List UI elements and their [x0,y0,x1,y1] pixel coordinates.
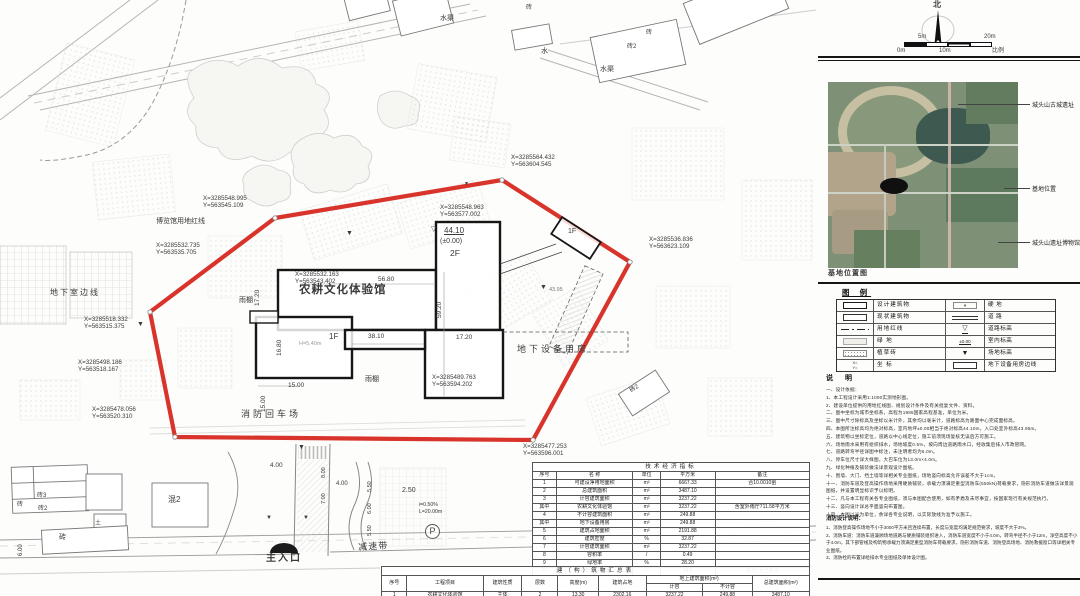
fire-notes-title: 消防设计说明： [826,514,1078,522]
note-line: 十一、消防车道及登高操作场地采用硬质铺装，承载力须满足重型消防车(550kN)荷… [826,480,1078,496]
redline-legend-icon [841,329,869,330]
note-line: 七、道路转弯半径详图中标注，未注明者均为6.0m。 [826,448,1078,456]
basement-legend-icon [953,362,977,369]
grassbrick-legend-icon [843,350,867,357]
table-row: 序号名 称单位平方米备注 [533,472,810,480]
note-line: 1、本工程设计采用1:1000实测地形图。 [826,394,1078,402]
legend-row: 用地红线▽道路标高 [837,323,1055,335]
fire-notes-section: 消防设计说明： 1、消防登高操作场地不小于3000平方米且连续布置，长度与宽度均… [826,514,1078,562]
panel-divider-mid [818,282,1080,284]
legend-label: 植草砖 [874,348,946,359]
note-line: 九、绿化种植及铺装做法详景观设计图纸。 [826,464,1078,472]
callout-label: 城头山古城遗址 [1032,100,1074,109]
panel-divider-bottom [818,578,1080,580]
grid-paving [0,246,132,324]
site-plan-sheet: { "colors": {"boundary_red": "#d8342c", … [0,0,1080,596]
legend-row: 设计建筑物硬 地 [837,300,1055,311]
legend-table: 设计建筑物硬 地现状建筑物道 路用地红线▽道路标高绿 地±0.00室内标高植草砖… [836,299,1056,372]
legend-title: 图 例 [842,287,871,298]
exist-legend-icon [843,314,867,321]
legend-label: 坐 标 [874,360,946,371]
note-line: 1、消防登高操作场地不小于3000平方米且连续布置，长度与宽度均满足规范要求，坡… [826,524,1078,532]
legend-label: 地下设备用房边线 [985,360,1055,371]
note-line: 2、建设单位提供的用地红线图、规划设计条件及有关批复文件、资料。 [826,402,1078,410]
photo-road [948,82,951,268]
legend-label: 绿 地 [874,336,946,347]
photo-road [884,144,886,268]
entrance-road [270,444,446,556]
table-row: 3计容建筑面积m²3237.22 [533,496,810,504]
contour-blobs [187,58,419,206]
aerial-photo [828,82,1018,268]
scale-caption: 比例 [992,48,1004,55]
legend-label: 室内标高 [985,336,1055,347]
roadlevel-legend-icon: ▽ [962,325,967,334]
road-legend-icon [952,316,978,320]
callout-line [998,242,1030,243]
note-line: 六、场地雨水采用有组织排水，场地坡度0.5%，坡向周边道路雨水口，经收集后排入市… [826,441,1078,449]
note-line: 3、消防栓的布置详给排水专业图纸及单体设计图。 [826,554,1078,562]
hard-legend-icon [953,302,977,309]
speed-bump-line [361,462,372,550]
legend-row: X= Y=坐 标地下设备用房边线 [837,359,1055,371]
callout-label: 城头山遗址博物馆 [1032,238,1080,247]
notes-title: 说 明 [826,373,1078,383]
sitelevel-legend-icon: ▼ [962,350,969,357]
table-row: 8容积率/0.49 [533,552,810,560]
hatch-patches [20,21,812,446]
table-row: 其中地下设备用房m²249.88 [533,520,810,528]
table-row: 技术经济指标 [533,463,810,472]
callout-line [1004,188,1030,189]
scale-tick: 0m [897,48,905,55]
callout-line [958,104,1030,105]
design-legend-icon [843,302,867,309]
panel-divider-top2 [818,60,1080,61]
table-row: 序号工程项目建筑性质层数高度(m)建筑占地地上建筑面积(m²)总建筑面积(m²) [382,576,810,584]
green-legend-icon [843,338,867,345]
table-row: 建（构）筑物汇总表 [382,567,810,576]
note-line: 十、围墙、大门、挡土墙等详相关专业图纸，场地竖向标高允许误差不大于1cm。 [826,472,1078,480]
indoor-legend-icon: ±0.00 [959,339,970,345]
panel-divider-top [818,56,1080,58]
photo-caption: 基地位置图 [828,270,868,278]
table-row: 1可建设净用地面积m²6667.33合10.0010亩 [533,480,810,488]
legend-row: 绿 地±0.00室内标高 [837,335,1055,347]
legend-row: 现状建筑物道 路 [837,311,1055,323]
note-line: 十二、凡与本工程有关各专业图纸，须与本图配合使用，如有矛盾及未尽事宜，按国家现行… [826,495,1078,503]
tech-indicator-table: 技术经济指标序号名 称单位平方米备注1可建设净用地面积m²6667.33合10.… [532,462,810,576]
note-line: 四、本图所注标高均为绝对标高，室内地坪±0.00相当于绝对标高44.10m，入口… [826,425,1078,433]
table-row: 6建筑密度%32.87 [533,536,810,544]
table-row: 1农耕文化体验馆主体213.302302.163237.22249.883487… [382,592,810,596]
note-line: 五、建筑物以坐标定位，道路以中心线定位，施工前须现场复核无误后方可施工。 [826,433,1078,441]
table-row: 4不计容建筑面积m²249.88 [533,512,810,520]
note-line: 二、图中坐标为城市坐标系，高程为1985国家高程基准，单位为米。 [826,409,1078,417]
building-summary-table: 建（构）筑物汇总表序号工程项目建筑性质层数高度(m)建筑占地地上建筑面积(m²)… [381,566,810,596]
note-line: 三、图中尺寸除标高及坐标以米计外，其余均以毫米计，道路标高为路面中心完成面标高。 [826,417,1078,425]
table-row: 其中农耕文化体验馆m²3237.22含室外雨厅711.58平方米 [533,504,810,512]
note-line: 十三、竖向设计详总平面竖向布置图。 [826,503,1078,511]
speed-bump-line [349,462,360,550]
legend-label: 现状建筑物 [874,312,946,323]
legend-label: 道 路 [985,312,1055,323]
legend-label: 设计建筑物 [874,300,946,311]
legend-label: 道路标高 [985,324,1055,335]
photo-road [828,192,1018,194]
field [966,82,1018,124]
photo-road [828,144,1018,146]
table-row: 7计容建筑面积m²3237.22 [533,544,810,552]
field [854,230,920,268]
legend-label: 硬 地 [985,300,1055,311]
notes-section: 说 明 一、设计依据：1、本工程设计采用1:1000实测地形图。2、建设单位提供… [826,373,1078,519]
coord-legend-icon: X= Y= [852,361,857,370]
legend-label: 用地红线 [874,324,946,335]
table-row: 2总建筑面积m²3487.10 [533,488,810,496]
scale-tick: 20m [984,34,996,41]
note-line: 一、设计依据： [826,386,1078,394]
site-marker [880,178,908,194]
legend-row: 植草砖▼场地标高 [837,347,1055,359]
table-row: 5建筑占地面积m²2191.88 [533,528,810,536]
annex-1f-building [551,217,600,259]
note-line: 八、停车位尺寸详大样图，大巴车位为13.0m×4.0m。 [826,456,1078,464]
callout-label: 基地位置 [1032,184,1056,193]
legend-label: 场地标高 [985,348,1055,359]
note-line: 2、消防车道：消防车道兼顾场地道路与硬质铺装组织进入，消防车道宽度不小于4.0m… [826,532,1078,555]
field [946,168,1018,222]
